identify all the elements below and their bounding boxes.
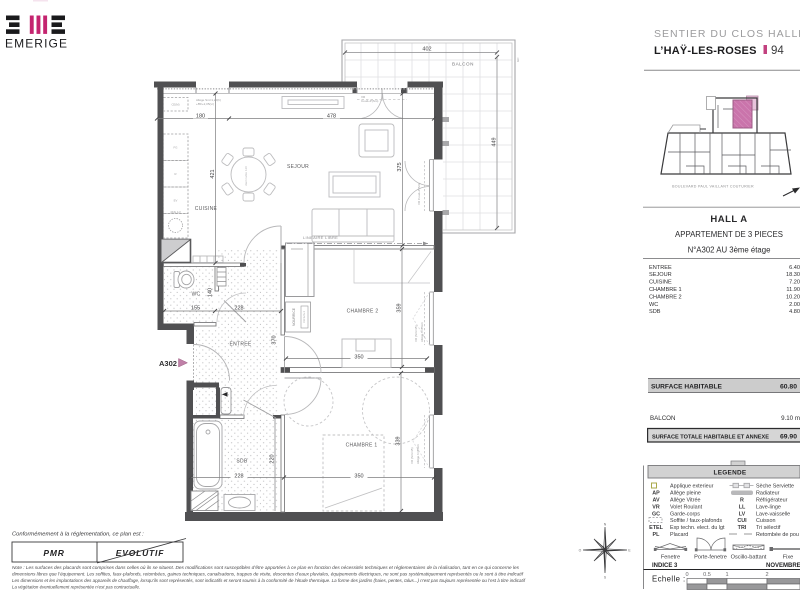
svg-text:VR (Sm=35): VR (Sm=35) xyxy=(414,325,418,342)
svg-text:Allège Vitrée: Allège Vitrée xyxy=(670,498,700,504)
svg-text:SENTIER DU CLOS HALLÉ: SENTIER DU CLOS HALLÉ xyxy=(654,27,800,40)
svg-text:4.80: 4.80 xyxy=(789,309,800,315)
svg-text:Garde-corps: Garde-corps xyxy=(670,511,700,517)
svg-text:Lave-linge: Lave-linge xyxy=(756,504,781,510)
svg-text:GC: GC xyxy=(516,57,520,62)
svg-text:2.00: 2.00 xyxy=(789,302,800,308)
svg-text:402: 402 xyxy=(422,47,431,53)
svg-text:7.20: 7.20 xyxy=(789,280,800,286)
svg-text:Allège h=85cm: Allège h=85cm xyxy=(416,444,420,464)
svg-text:AP: AP xyxy=(652,491,660,497)
svg-text:Porte-fenetre: Porte-fenetre xyxy=(694,555,727,561)
svg-text:18.30: 18.30 xyxy=(786,272,800,278)
svg-text:L’HAŸ-LES-ROSES: L’HAŸ-LES-ROSES xyxy=(654,44,757,57)
svg-text:SURFACE TOTALE HABITABLE ET AN: SURFACE TOTALE HABITABLE ET ANNEXE xyxy=(652,435,769,441)
svg-text:228: 228 xyxy=(234,306,243,312)
svg-text:421: 421 xyxy=(210,169,216,178)
svg-text:69.90: 69.90 xyxy=(780,434,797,441)
svg-text:Oscillo-battant: Oscillo-battant xyxy=(731,555,767,561)
svg-text:dimensions libres que l’équipe: dimensions libres que l’équipement. Les … xyxy=(12,572,524,577)
svg-text:Exp techn. elect. du lgt: Exp techn. elect. du lgt xyxy=(670,525,725,531)
svg-text:Tri sélectif: Tri sélectif xyxy=(756,525,781,531)
svg-text:FG: FG xyxy=(174,146,178,150)
svg-text:+85/+2,05(vr): +85/+2,05(vr) xyxy=(196,102,214,106)
svg-text:60.80: 60.80 xyxy=(780,384,797,391)
svg-text:Soffite / faux-plafonds: Soffite / faux-plafonds xyxy=(670,518,722,524)
svg-text:S: S xyxy=(604,576,607,580)
svg-text:EVOLUTIF: EVOLUTIF xyxy=(116,548,164,558)
svg-text:O: O xyxy=(579,549,582,553)
svg-text:SDB: SDB xyxy=(236,459,248,465)
svg-text:HALL A: HALL A xyxy=(710,214,747,225)
svg-text:Allège h=85cm: Allège h=85cm xyxy=(420,322,424,342)
svg-text:339: 339 xyxy=(395,436,401,445)
svg-text:CUISINE: CUISINE xyxy=(195,206,218,212)
svg-text:180: 180 xyxy=(196,114,205,120)
svg-text:Cuisson: Cuisson xyxy=(756,518,775,524)
svg-text:GC: GC xyxy=(652,511,660,517)
svg-text:SURFACE HABITABLE: SURFACE HABITABLE xyxy=(651,384,723,391)
svg-text:Sèche Serviette: Sèche Serviette xyxy=(756,484,794,490)
svg-text:6.40: 6.40 xyxy=(789,265,800,271)
svg-text:La végétation éventuellement r: La végétation éventuellement représentée… xyxy=(12,585,140,590)
svg-text:4F/E.1/2: 4F/E.1/2 xyxy=(170,210,181,214)
svg-text:350: 350 xyxy=(354,355,363,361)
svg-text:Note : Les surfaces des placar: Note : Les surfaces des placards sont co… xyxy=(12,565,520,570)
svg-text:CH 3+5+1: CH 3+5+1 xyxy=(302,311,306,323)
svg-text:449: 449 xyxy=(492,137,498,146)
svg-text:CHAMBRE 1: CHAMBRE 1 xyxy=(649,287,682,293)
svg-text:SDB: SDB xyxy=(649,309,661,315)
svg-text:A302: A302 xyxy=(159,359,177,368)
svg-text:CUISINE: CUISINE xyxy=(649,280,672,286)
svg-text:228: 228 xyxy=(234,474,243,480)
svg-text:375: 375 xyxy=(397,162,403,171)
svg-text:Fenetre: Fenetre xyxy=(661,555,680,561)
svg-text:155: 155 xyxy=(191,306,200,312)
svg-text:LEGENDE: LEGENDE xyxy=(714,470,747,477)
svg-text:WC: WC xyxy=(192,292,201,298)
svg-text:Radiateur: Radiateur xyxy=(756,491,780,497)
svg-text:Echelle :: Echelle : xyxy=(652,575,686,584)
svg-text:Les dimensions et les implanta: Les dimensions et les implantations des … xyxy=(12,578,526,583)
svg-text:CHAMBRE 1: CHAMBRE 1 xyxy=(346,443,378,449)
svg-text:LINEAIRE LIBRE: LINEAIRE LIBRE xyxy=(303,235,338,240)
svg-text:NOVEMBRE 20: NOVEMBRE 20 xyxy=(766,563,800,569)
svg-text:ETEL: ETEL xyxy=(649,525,663,531)
svg-text:VR: VR xyxy=(652,504,660,510)
svg-text:Applique exterieur: Applique exterieur xyxy=(670,484,714,490)
svg-text:R: R xyxy=(740,498,744,504)
svg-text:359: 359 xyxy=(396,303,402,312)
svg-text:APPARTEMENT DE 3 PIECES: APPARTEMENT DE 3 PIECES xyxy=(675,230,783,239)
svg-text:Allège pleine: Allège pleine xyxy=(670,491,701,497)
svg-text:BALCON: BALCON xyxy=(650,415,675,422)
svg-text:CHAMBRE 2: CHAMBRE 2 xyxy=(649,294,682,300)
svg-text:CE(M): CE(M) xyxy=(171,103,179,107)
svg-text:R: R xyxy=(174,172,176,176)
svg-text:E: E xyxy=(628,549,631,553)
svg-text:CUI: CUI xyxy=(737,518,747,524)
svg-text:94: 94 xyxy=(771,45,784,57)
svg-text:SEJOUR: SEJOUR xyxy=(287,164,309,170)
svg-text:478: 478 xyxy=(327,114,336,120)
svg-text:PMR: PMR xyxy=(43,548,64,558)
svg-text:ENTREE: ENTREE xyxy=(229,342,251,348)
svg-text:0.5: 0.5 xyxy=(703,572,711,578)
svg-text:Cou2+P(Sm): Cou2+P(Sm) xyxy=(361,99,378,103)
svg-text:SEJOUR: SEJOUR xyxy=(649,272,672,278)
svg-text:Placard: Placard xyxy=(670,532,688,538)
svg-text:Réfrigérateur: Réfrigérateur xyxy=(756,498,788,504)
svg-text:NOURRICE: NOURRICE xyxy=(292,307,296,326)
svg-text:Volet Roulant: Volet Roulant xyxy=(670,504,703,510)
svg-text:350: 350 xyxy=(354,474,363,480)
svg-text:INDICE 3: INDICE 3 xyxy=(652,563,678,569)
svg-text:140: 140 xyxy=(208,288,214,297)
svg-text:Lave-vaisselle: Lave-vaisselle xyxy=(756,511,790,517)
svg-text:BOULEVARD PAUL VAILLANT COUTUR: BOULEVARD PAUL VAILLANT COUTURIER xyxy=(672,185,754,189)
svg-text:2: 2 xyxy=(765,572,768,578)
svg-text:TRI: TRI xyxy=(738,525,747,531)
svg-text:9.10 m: 9.10 m xyxy=(781,415,800,422)
svg-text:220: 220 xyxy=(269,454,275,463)
svg-text:Fixe: Fixe xyxy=(783,555,794,561)
svg-text:0: 0 xyxy=(685,572,688,578)
svg-text:370: 370 xyxy=(272,335,278,344)
svg-text:11.90: 11.90 xyxy=(786,287,800,293)
svg-text:LL: LL xyxy=(739,504,746,510)
svg-text:VR Cou2+P(Sm): VR Cou2+P(Sm) xyxy=(417,183,421,205)
svg-text:Retombée de pou: Retombée de pou xyxy=(756,532,799,538)
svg-text:ENTREE: ENTREE xyxy=(649,265,672,271)
svg-text:AV: AV xyxy=(652,498,659,504)
svg-text:diam table 120: diam table 120 xyxy=(244,166,248,186)
svg-text:PL: PL xyxy=(653,532,661,538)
svg-text:EV: EV xyxy=(174,199,178,203)
svg-text:EMERIGE: EMERIGE xyxy=(5,37,68,51)
svg-text:CHAMBRE 2: CHAMBRE 2 xyxy=(347,309,379,315)
svg-text:VR (Sm=35): VR (Sm=35) xyxy=(410,447,414,464)
svg-text:Conformémement à la réglementa: Conformémement à la réglementation, ce p… xyxy=(12,532,144,538)
svg-text:N: N xyxy=(604,523,607,527)
svg-text:10.20: 10.20 xyxy=(786,294,800,300)
svg-text:1: 1 xyxy=(725,572,728,578)
svg-text:LV: LV xyxy=(739,511,746,517)
svg-text:BALCON: BALCON xyxy=(452,62,474,67)
svg-text:N°A302 AU 3ème étage: N°A302 AU 3ème étage xyxy=(688,246,771,255)
svg-text:WC: WC xyxy=(649,302,658,308)
